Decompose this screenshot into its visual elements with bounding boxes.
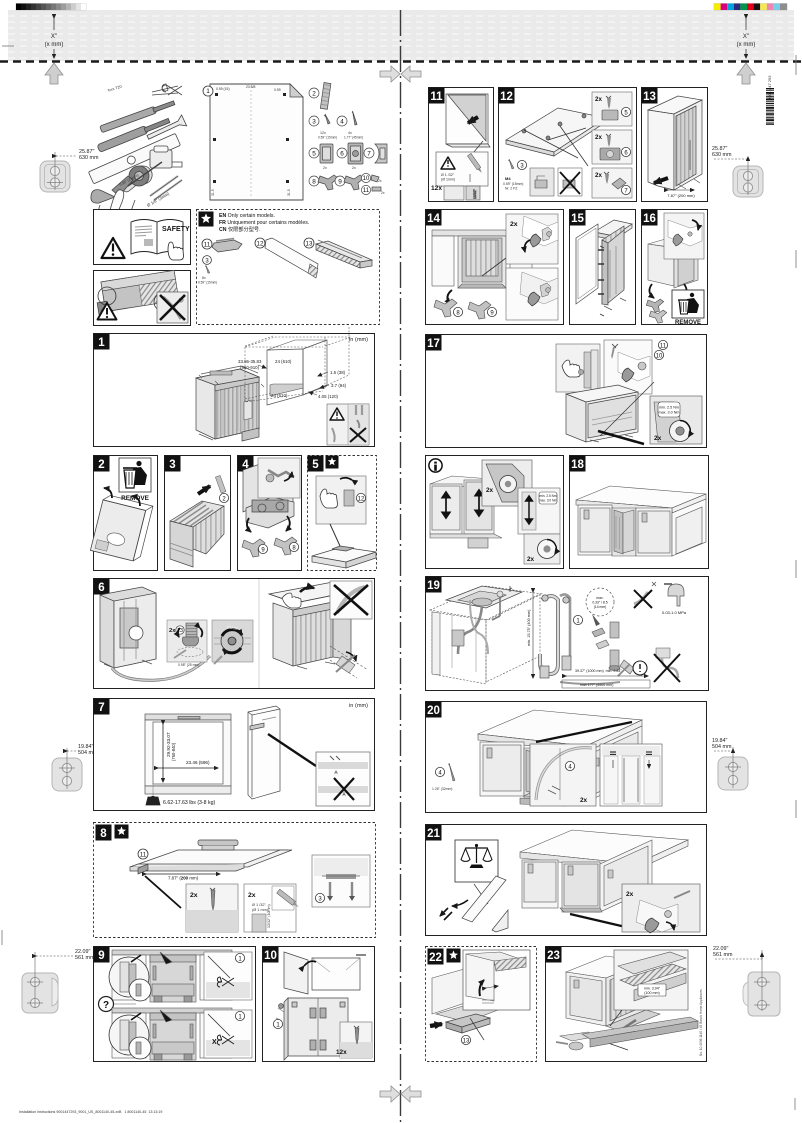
svg-text:1.77" (45mm): 1.77" (45mm) [344, 136, 363, 140]
svg-text:0.59" (15mm): 0.59" (15mm) [198, 281, 217, 285]
svg-text:2x: 2x [323, 166, 327, 170]
svg-text:6: 6 [98, 582, 104, 594]
svg-text:561 mm: 561 mm [75, 955, 95, 961]
svg-text:2x: 2x [595, 172, 602, 179]
svg-text:2: 2 [98, 459, 104, 471]
svg-text:12x: 12x [320, 131, 326, 135]
svg-text:13: 13 [643, 91, 656, 103]
svg-text:0.98" (25 mm): 0.98" (25 mm) [178, 663, 199, 667]
svg-text:SAFETY: SAFETY [162, 226, 190, 233]
svg-text:1: 1 [206, 88, 210, 95]
svg-text:2x: 2x [381, 191, 385, 195]
svg-text:CN 仅限部分型号.: CN 仅限部分型号. [219, 225, 261, 233]
svg-text:10: 10 [264, 950, 277, 962]
svg-text:20: 20 [427, 705, 440, 717]
svg-text:22: 22 [429, 952, 442, 964]
svg-text:min. 2.5 Nm: min. 2.5 Nm [659, 406, 679, 410]
svg-text:X": X" [51, 34, 57, 40]
svg-text:17: 17 [427, 338, 440, 350]
svg-text:13: 13 [306, 240, 313, 247]
svg-text:11: 11 [140, 851, 147, 858]
svg-text:14: 14 [427, 213, 440, 225]
svg-text:4.05 (120): 4.05 (120) [318, 394, 339, 399]
svg-text:Ø 1 /32": Ø 1 /32" [441, 173, 455, 177]
svg-text:6.62-17.63 lbs (3-8 kg): 6.62-17.63 lbs (3-8 kg) [163, 800, 215, 806]
svg-text:?: ? [103, 1000, 109, 1011]
svg-text:8: 8 [312, 178, 316, 185]
svg-text:11: 11 [660, 343, 667, 349]
svg-text:min. 3.94": min. 3.94" [644, 986, 661, 990]
svg-text:8x: 8x [202, 276, 206, 280]
svg-text:Nr. 2 PZ: Nr. 2 PZ [505, 187, 517, 191]
svg-text:(x mm): (x mm) [45, 42, 64, 48]
svg-text:16: 16 [643, 213, 656, 225]
svg-text:EN Only certain models.: EN Only certain models. [219, 213, 275, 219]
svg-text:(Ø 1mm): (Ø 1mm) [441, 178, 455, 182]
svg-text:23 5/8: 23 5/8 [246, 85, 256, 89]
svg-text:24 (610): 24 (610) [271, 393, 288, 398]
svg-text:0.59" (15mm): 0.59" (15mm) [503, 182, 523, 186]
svg-text:2x: 2x [580, 797, 588, 804]
svg-text:630 mm: 630 mm [79, 155, 99, 161]
svg-text:(x mm): (x mm) [737, 42, 756, 48]
svg-text:5: 5 [312, 459, 319, 471]
svg-text:31.5: 31.5 [211, 189, 215, 196]
svg-text:No. 10 4936 1140 / 45 Bosch Ho: No. 10 4936 1140 / 45 Bosch Home Applian… [699, 989, 703, 1056]
svg-text:630 mm: 630 mm [712, 152, 732, 158]
svg-text:10: 10 [656, 353, 663, 359]
svg-text:2x: 2x [527, 556, 535, 563]
svg-text:9: 9 [338, 178, 342, 185]
svg-text:13: 13 [463, 1038, 470, 1044]
svg-text:23: 23 [547, 950, 560, 962]
svg-text:REMOVE: REMOVE [675, 320, 701, 326]
svg-text:504 mm: 504 mm [712, 744, 732, 750]
svg-text:2x: 2x [510, 221, 518, 228]
svg-text:2x: 2x [486, 487, 494, 494]
svg-text:0.33" / 8.5: 0.33" / 8.5 [592, 601, 607, 605]
svg-text:4x: 4x [348, 131, 352, 135]
svg-text:561 mm: 561 mm [713, 952, 733, 958]
svg-text:2x: 2x [654, 435, 662, 442]
svg-text:0.59 (15): 0.59 (15) [216, 87, 230, 91]
svg-text:19: 19 [427, 580, 440, 592]
svg-text:3.7 (94): 3.7 (94) [331, 383, 347, 388]
svg-text:13/32" (10mm): 13/32" (10mm) [267, 904, 271, 928]
svg-text:X": X" [743, 34, 749, 40]
svg-text:(860-910): (860-910) [240, 365, 260, 370]
svg-text:X: X [212, 1039, 217, 1046]
svg-text:2: 2 [312, 90, 316, 97]
svg-text:15: 15 [571, 213, 584, 225]
svg-text:2x: 2x [378, 179, 382, 183]
svg-text:0.59" (15mm): 0.59" (15mm) [318, 136, 337, 140]
svg-text:12: 12 [358, 496, 365, 502]
svg-text:(100 mm): (100 mm) [644, 991, 659, 995]
svg-text:in (mm): in (mm) [349, 703, 368, 709]
svg-text:2x: 2x [595, 96, 602, 103]
svg-text:6: 6 [340, 150, 344, 157]
svg-text:max. 3.0 Nm: max. 3.0 Nm [539, 498, 557, 502]
svg-text:39.37" (1000 mm) min. 9.84": 39.37" (1000 mm) min. 9.84" [575, 669, 622, 673]
svg-text:18: 18 [571, 459, 584, 471]
svg-text:FR Uniquement pour certains mo: FR Uniquement pour certains modèles. [219, 220, 309, 226]
svg-text:5: 5 [312, 150, 316, 157]
svg-text:11: 11 [430, 91, 443, 103]
svg-text:0.03-1.0 MPa: 0.03-1.0 MPa [662, 610, 687, 615]
svg-text:9: 9 [98, 950, 104, 962]
svg-text:max.: max. [596, 596, 603, 600]
svg-text:33.86-35.83: 33.86-35.83 [238, 359, 262, 364]
svg-text:3: 3 [169, 459, 175, 471]
svg-text:21: 21 [427, 828, 440, 840]
svg-text:2x: 2x [595, 134, 602, 141]
svg-text:12x: 12x [431, 185, 442, 192]
svg-text:Installation instructions 9001: Installation instructions 9001447293_900… [19, 1110, 162, 1114]
svg-text:12: 12 [257, 240, 264, 247]
svg-text:3: 3 [312, 118, 316, 125]
svg-text:10: 10 [363, 176, 370, 182]
svg-text:(760-840): (760-840) [171, 742, 176, 761]
svg-text:max. 3.0 Nm: max. 3.0 Nm [659, 411, 680, 415]
svg-text:0.59: 0.59 [274, 88, 281, 92]
svg-text:8: 8 [100, 828, 107, 840]
svg-text:min. 2.5 Nm: min. 2.5 Nm [539, 494, 557, 498]
svg-text:1.5 (38): 1.5 (38) [330, 370, 346, 375]
svg-text:23.46 (596): 23.46 (596) [186, 760, 210, 765]
svg-text:11: 11 [204, 241, 211, 248]
svg-text:(14 mm): (14 mm) [594, 605, 607, 609]
svg-text:7: 7 [98, 702, 104, 714]
svg-text:2x: 2x [352, 166, 356, 170]
svg-text:2x: 2x [626, 891, 634, 898]
svg-text:7.87" (200 mm): 7.87" (200 mm) [168, 876, 199, 881]
svg-text:1: 1 [98, 337, 105, 349]
svg-text:12: 12 [500, 91, 513, 103]
svg-text:2x: 2x [248, 892, 256, 899]
svg-text:Ø 1 /32": Ø 1 /32" [252, 903, 266, 907]
svg-text:12x: 12x [336, 1049, 347, 1056]
svg-text:in (mm): in (mm) [349, 337, 368, 343]
svg-text:1.26" (32mm): 1.26" (32mm) [432, 787, 452, 791]
svg-text:24 (610): 24 (610) [275, 359, 292, 364]
svg-text:7: 7 [367, 150, 371, 157]
svg-text:7.87" (200 mm): 7.87" (200 mm) [667, 193, 695, 198]
svg-text:M4: M4 [505, 176, 511, 181]
svg-text:max 177" (4500 mm): max 177" (4500 mm) [580, 683, 613, 687]
svg-text:13/32": 13/32" [473, 189, 477, 199]
svg-text:2x: 2x [169, 628, 176, 634]
svg-text:4: 4 [340, 118, 344, 125]
svg-text:2x: 2x [190, 892, 198, 899]
svg-text:11: 11 [363, 188, 370, 194]
svg-text:min. 15.75" (400 mm): min. 15.75" (400 mm) [527, 609, 531, 646]
svg-text:31.5: 31.5 [287, 189, 291, 196]
